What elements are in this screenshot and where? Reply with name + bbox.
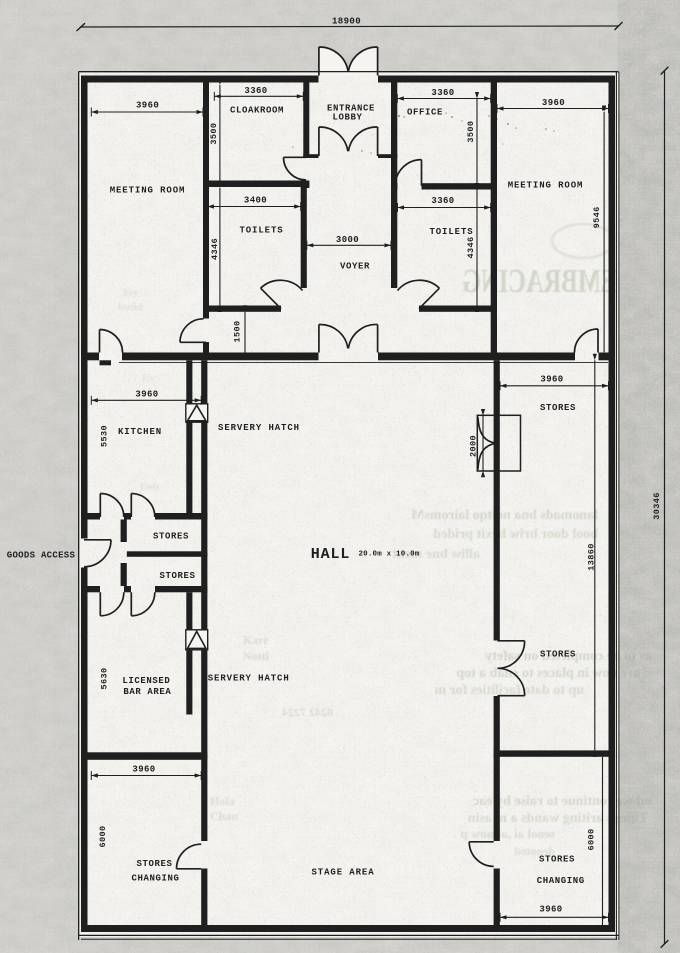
svg-text:OFFICE: OFFICE: [407, 107, 443, 117]
svg-text:3960: 3960: [136, 101, 159, 111]
svg-text:4346: 4346: [466, 236, 476, 258]
svg-text:20.0m x 10.0m: 20.0m x 10.0m: [358, 551, 419, 559]
svg-text:LICENSED: LICENSED: [122, 676, 170, 686]
svg-text:CLOAKROOM: CLOAKROOM: [230, 105, 284, 115]
svg-text:STORES: STORES: [540, 650, 576, 660]
svg-text:Ev: Ev: [142, 372, 155, 384]
svg-text:Hola: Hola: [210, 794, 235, 808]
svg-text:3000: 3000: [336, 235, 359, 245]
svg-text:3400: 3400: [244, 195, 267, 205]
svg-text:Kare: Kare: [243, 633, 269, 647]
svg-text:Deb: Deb: [140, 481, 159, 493]
svg-text:13860: 13860: [586, 543, 596, 571]
svg-text:2000: 2000: [469, 435, 479, 457]
svg-text:KITCHEN: KITCHEN: [118, 427, 162, 437]
svg-text:3500: 3500: [466, 121, 476, 143]
svg-text:TOILETS: TOILETS: [429, 227, 473, 237]
svg-text:STORES: STORES: [136, 859, 172, 869]
svg-text:3360: 3360: [244, 86, 267, 96]
svg-text:seool ai ,abnow p: seool ai ,abnow p: [460, 826, 555, 841]
svg-text:Notti: Notti: [243, 649, 270, 663]
svg-text:6000: 6000: [98, 825, 108, 847]
svg-text:5630: 5630: [100, 667, 110, 689]
svg-text:Chan: Chan: [210, 809, 238, 823]
svg-text:HALL: HALL: [311, 546, 351, 563]
svg-text:MEETING ROOM: MEETING ROOM: [508, 181, 584, 191]
svg-text:LOBBY: LOBBY: [332, 113, 362, 123]
svg-text:3960: 3960: [135, 390, 158, 400]
svg-text:STORES: STORES: [540, 403, 576, 413]
svg-text:STORES: STORES: [539, 855, 575, 865]
svg-text:STORES: STORES: [153, 532, 189, 542]
svg-text:lanomads bna noitqo lairomsM: lanomads bna noitqo lairomsM: [411, 508, 598, 523]
svg-text:BAR AREA: BAR AREA: [123, 687, 171, 697]
svg-text:5530: 5530: [100, 425, 110, 447]
svg-text:GOODS ACCESS: GOODS ACCESS: [7, 551, 76, 561]
svg-text:SERVERY HATCH: SERVERY HATCH: [208, 674, 290, 684]
svg-text:9546: 9546: [592, 206, 602, 228]
svg-text:30346: 30346: [652, 492, 662, 520]
svg-text:EMBRACING: EMBRACING: [462, 263, 617, 300]
svg-text:STORES: STORES: [159, 571, 195, 581]
svg-text:SERVERY HATCH: SERVERY HATCH: [218, 423, 300, 433]
svg-text:18900: 18900: [332, 17, 361, 27]
svg-text:nd we continue to raise by eac: nd we continue to raise by eac: [473, 794, 652, 809]
svg-text:bool door briw bexit prided: bool door briw bexit prided: [433, 527, 598, 542]
svg-text:Yes: Yes: [122, 287, 139, 299]
svg-text:3960: 3960: [539, 904, 562, 914]
svg-text:3360: 3360: [431, 88, 454, 98]
svg-text:3960: 3960: [132, 765, 155, 775]
svg-text:3960: 3960: [540, 374, 563, 384]
svg-text:TOILETS: TOILETS: [239, 226, 283, 236]
svg-text:1500: 1500: [232, 320, 242, 342]
svg-text:0242 7224: 0242 7224: [282, 705, 333, 719]
svg-text:6000: 6000: [587, 828, 597, 850]
svg-text:3360: 3360: [431, 196, 454, 206]
svg-text:4346: 4346: [210, 238, 220, 260]
svg-text:CHANGING: CHANGING: [537, 876, 585, 886]
svg-text:build: build: [118, 301, 142, 313]
svg-text:VOYER: VOYER: [340, 262, 370, 272]
svg-text:3960: 3960: [542, 98, 565, 108]
svg-text:CHANGING: CHANGING: [131, 874, 179, 884]
svg-text:MEETING ROOM: MEETING ROOM: [110, 185, 186, 195]
svg-text:3500: 3500: [209, 123, 219, 145]
svg-text:STAGE AREA: STAGE AREA: [311, 868, 374, 878]
